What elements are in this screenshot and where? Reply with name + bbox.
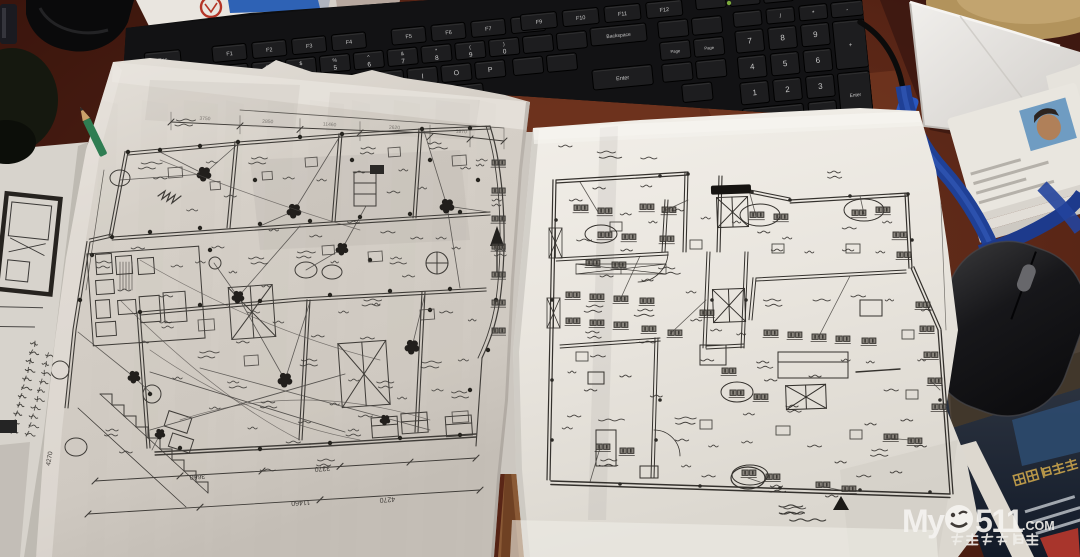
svg-text:F2: F2 (266, 47, 273, 54)
svg-text:F1: F1 (226, 51, 233, 58)
svg-text:3750: 3750 (199, 116, 211, 123)
svg-text:4270: 4270 (379, 495, 395, 503)
svg-text:F6: F6 (445, 30, 452, 37)
svg-text:F3: F3 (306, 43, 313, 50)
svg-text:.COM: .COM (1022, 519, 1055, 533)
svg-text:11460: 11460 (323, 122, 337, 129)
svg-text:F9: F9 (535, 19, 542, 26)
svg-text:Enter: Enter (616, 75, 630, 82)
svg-text:511: 511 (975, 503, 1023, 539)
svg-text:11460: 11460 (291, 498, 310, 506)
svg-text:Page: Page (670, 48, 681, 54)
svg-text:3660: 3660 (189, 472, 205, 480)
svg-text:F7: F7 (485, 26, 492, 33)
svg-text:F4: F4 (346, 40, 353, 47)
svg-text:My: My (902, 503, 945, 539)
svg-text:Enter: Enter (849, 92, 861, 99)
svg-text:2850: 2850 (262, 119, 274, 126)
svg-text:F5: F5 (405, 34, 412, 41)
svg-text:3370: 3370 (314, 464, 330, 472)
svg-text:F12: F12 (659, 7, 669, 14)
svg-text:F10: F10 (576, 15, 586, 22)
svg-text:Page: Page (704, 45, 715, 51)
svg-text:F11: F11 (618, 11, 628, 18)
